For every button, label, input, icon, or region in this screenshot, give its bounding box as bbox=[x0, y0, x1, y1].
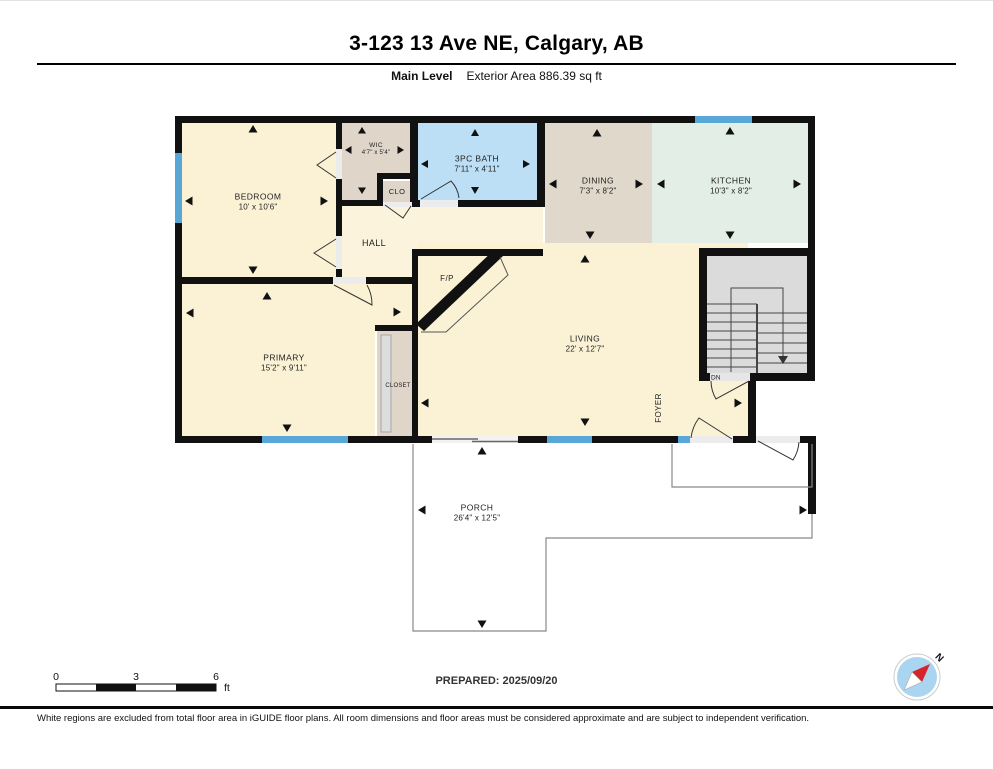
bedroom-window bbox=[175, 153, 182, 223]
porch-edge bbox=[413, 444, 812, 631]
landing-edge bbox=[672, 444, 812, 487]
closet-label: CLOSET bbox=[385, 383, 410, 391]
living-label: LIVING22' x 12'7" bbox=[566, 333, 605, 354]
stairs-dn-label: DN bbox=[711, 375, 720, 382]
kitchen-window bbox=[695, 116, 752, 123]
living-window bbox=[547, 436, 592, 443]
foyer-label: FOYER bbox=[654, 393, 664, 423]
wic-label: WIC4'7" x 5'4" bbox=[362, 142, 390, 158]
primary-vestibule-area bbox=[375, 284, 418, 325]
fireplace-label: F/P bbox=[440, 274, 454, 284]
porch-label: PORCH26'4" x 12'5" bbox=[454, 502, 500, 523]
stairs bbox=[707, 256, 807, 381]
floor-plan-graphic bbox=[0, 1, 993, 769]
hall-strip-area bbox=[412, 206, 543, 249]
bath-label: 3PC BATH7'11" x 4'11" bbox=[454, 153, 499, 174]
dining-label: DINING7'3" x 8'2" bbox=[579, 175, 616, 196]
porch-outline bbox=[413, 444, 812, 631]
primary-label: PRIMARY15'2" x 9'11" bbox=[261, 352, 307, 373]
footer-divider bbox=[0, 706, 993, 709]
primary-window bbox=[262, 436, 348, 443]
hall-label: HALL bbox=[362, 238, 386, 250]
disclaimer-text: White regions are excluded from total fl… bbox=[37, 713, 967, 724]
bedroom-label: BEDROOM10' x 10'6" bbox=[235, 191, 282, 212]
prepared-date: PREPARED: 2025/09/20 bbox=[0, 675, 993, 687]
landing-door bbox=[758, 441, 799, 460]
foyer-window bbox=[678, 436, 690, 443]
kitchen-label: KITCHEN10'3" x 8'2" bbox=[710, 175, 752, 196]
clo-label: CLO bbox=[389, 187, 406, 197]
floor-plan-page: 3-123 13 Ave NE, Calgary, AB Main LevelE… bbox=[0, 0, 993, 769]
